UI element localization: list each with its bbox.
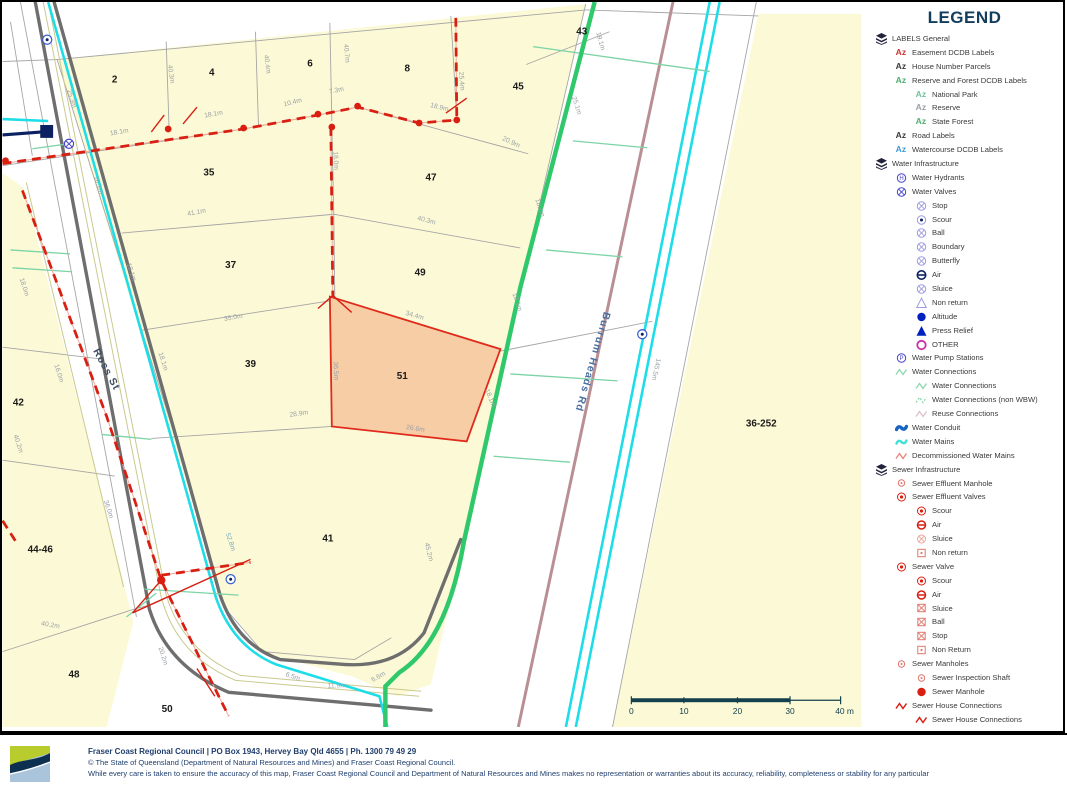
legend-item: Sewer House Connections [866,699,1063,713]
legend-item: Reuse Connections [866,407,1063,421]
water-valve-icon [64,139,73,148]
scale-end-label: 40 m [835,706,854,716]
legend-item: AzHouse Number Parcels [866,60,1063,74]
dimension-label: 36.5m [331,361,339,380]
legend-panel: LEGEND LABELS GeneralAzEasement DCDB Lab… [866,0,1065,733]
triangle-filled-blue-icon [914,325,928,337]
legend-item: Decommissioned Water Mains [866,449,1063,463]
legend-item-label: Scour [932,504,952,518]
legend-item: AzNational Park [866,88,1063,102]
scale-tick-label: 20 [733,706,743,716]
legend-item-label: Butterfly [932,254,960,268]
legend-item-label: Sewer Manhole [932,685,985,699]
legend-item: Boundary [866,240,1063,254]
dimension-label: 25.4m [457,72,465,92]
legend-item-label: Sewer Effluent Manhole [912,477,993,491]
legend-item-label: Non return [932,546,968,560]
zigzag-green-icon [914,380,928,392]
parcel-label: 47 [425,173,437,184]
legend-item-label: Water Infrastructure [892,157,959,171]
circle-dot-red-icon [914,575,928,587]
legend-item: PWater Pump Stations [866,351,1063,365]
parcel-label: 36-252 [746,418,777,429]
dimension-label: 18.0m [331,151,339,170]
legend-item: Sluice [866,532,1063,546]
parcel-label: 8 [404,63,410,74]
legend-item: Water Connections (non WBW) [866,393,1063,407]
az-dark-icon: Az [894,61,908,73]
legend-item: Stop [866,199,1063,213]
footer-line-1: Fraser Coast Regional Council | PO Box 1… [88,747,1058,756]
legend-item-label: Sewer Effluent Valves [912,490,986,504]
circle-x-lightblue-icon [914,200,928,212]
circle-x-blue-icon [894,186,908,198]
legend-item: Sluice [866,602,1063,616]
circle-dot-red-small-icon [894,477,908,489]
legend-item: Scour [866,574,1063,588]
legend-item: AzState Forest [866,115,1063,129]
legend-item: LABELS General [866,32,1063,46]
water-hydrant-icon [638,330,647,339]
footer-text: Fraser Coast Regional Council | PO Box 1… [88,747,1058,778]
parcel-label: 41 [322,534,334,545]
legend-item-label: Water Connections [932,379,996,393]
circle-dot-red-small-icon [894,658,908,670]
legend-item: Altitude [866,310,1063,324]
circle-hbar-blue-icon [914,269,928,281]
legend-title: LEGEND [866,8,1063,28]
legend-item: Sewer Inspection Shaft [866,671,1063,685]
svg-text:H: H [899,176,903,182]
circle-magenta-icon [914,339,928,351]
legend-item-label: Reserve [932,101,960,115]
square-x-red-icon [914,616,928,628]
legend-item-label: Reuse Connections [932,407,998,421]
legend-item: Water Mains [866,435,1063,449]
legend-item: Air [866,268,1063,282]
parcel-label: 42 [13,398,25,409]
legend-item: Sewer Manholes [866,657,1063,671]
zigzag-salmon-icon [894,450,908,462]
gis-print-page: 24684543354737493951414244-46485036-252R… [0,0,1067,800]
zigzag-red-icon [894,700,908,712]
circle-x-lightblue-icon [914,227,928,239]
parcel-label: 44-46 [28,544,54,555]
parcel-label: 4 [209,67,215,78]
legend-item-label: Reserve and Forest DCDB Labels [912,74,1027,88]
dimension-label: 11.9m [328,682,347,689]
legend-item: Sewer Effluent Valves [866,490,1063,504]
scale-tick-label: 0 [629,706,634,716]
legend-items: LABELS GeneralAzEasement DCDB LabelsAzHo… [866,32,1063,727]
legend-item-label: Decommissioned Water Mains [912,449,1015,463]
legend-item: Scour [866,213,1063,227]
legend-item: Water Connections [866,365,1063,379]
legend-item: Sewer Effluent Manhole [866,477,1063,491]
legend-item: AzWatercourse DCDB Labels [866,143,1063,157]
legend-item: AzReserve [866,101,1063,115]
legend-item-label: LABELS General [892,32,950,46]
parcel-label: 45 [513,81,525,92]
legend-item-label: Ball [932,615,945,629]
legend-item: Ball [866,615,1063,629]
az-dark-icon: Az [894,130,908,142]
legend-item-label: State Forest [932,115,973,129]
circle-p-blue-icon: P [894,352,908,364]
wave-navy-icon [894,422,908,434]
legend-item-label: Scour [932,213,952,227]
triangle-outline-icon [914,297,928,309]
circle-x-lightred-icon [914,533,928,545]
legend-item-label: Non Return [932,643,971,657]
legend-item: Water Valves [866,185,1063,199]
dimension-label: 19.1m [594,31,606,51]
legend-item: Sewer House Connections [866,713,1063,727]
map-canvas[interactable]: 24684543354737493951414244-46485036-252R… [2,2,862,727]
zigzag-green-dashed-icon [914,394,928,406]
dimension-label: 6.5m [284,671,301,683]
az-teal-icon: Az [914,89,928,101]
parcel-label: 37 [225,260,237,271]
square-x-red-icon [914,630,928,642]
dimension-label: 145.5m [650,358,662,382]
scale-tick-label: 30 [785,706,795,716]
az-red-icon: Az [894,47,908,59]
legend-item-label: Stop [932,629,948,643]
parcel-label: 48 [68,669,80,680]
parcel-label: 43 [576,27,588,38]
layers-icon [874,158,888,170]
map-frame: 24684543354737493951414244-46485036-252R… [0,0,868,733]
az-green-icon: Az [894,75,908,87]
legend-item-label: Watercourse DCDB Labels [912,143,1003,157]
legend-item-label: Boundary [932,240,965,254]
legend-item-label: Air [932,588,941,602]
water-hydrant-icon [226,575,235,584]
legend-item: Non return [866,546,1063,560]
legend-item: HWater Hydrants [866,171,1063,185]
legend-item-label: Air [932,268,941,282]
legend-item: Non return [866,296,1063,310]
legend-item-label: Press Relief [932,324,973,338]
legend-item: Water Connections [866,379,1063,393]
legend-item: Butterfly [866,254,1063,268]
square-x-red-icon [914,602,928,614]
circle-x-lightblue-icon [914,283,928,295]
square-dot-red-icon [914,547,928,559]
legend-item: Water Infrastructure [866,157,1063,171]
svg-text:P: P [899,357,903,363]
layers-icon [874,33,888,45]
legend-item-label: Sewer Manholes [912,657,969,671]
legend-item-label: House Number Parcels [912,60,991,74]
parcel-label: 35 [203,168,215,179]
parcel-label: 6 [307,58,313,69]
legend-item: Sewer Infrastructure [866,463,1063,477]
legend-item: Water Conduit [866,421,1063,435]
parcel-label: 51 [397,371,409,382]
road-label: Burrum Heads Rd [573,311,612,413]
legend-item-label: Water Connections (non WBW) [932,393,1038,407]
legend-item-label: Air [932,518,941,532]
layers-icon [874,464,888,476]
zigzag-green-icon [894,366,908,378]
dimension-label: 20.2m [156,646,169,666]
circle-dot-red-icon [894,561,908,573]
water-hydrant-icon [43,35,52,44]
scale-tick-label: 10 [679,706,689,716]
parcel-label: 50 [162,704,174,715]
az-gray-icon: Az [914,102,928,114]
footer: Fraser Coast Regional Council | PO Box 1… [0,733,1067,800]
wave-cyan-icon [894,436,908,448]
footer-line-3: While every care is taken to ensure the … [88,769,1058,778]
legend-item-label: Altitude [932,310,957,324]
circle-hbar-red-icon [914,519,928,531]
legend-item: Press Relief [866,324,1063,338]
parcel-label: 39 [245,359,257,370]
legend-item-label: Sluice [932,532,953,546]
legend-item-label: Sewer Infrastructure [892,463,960,477]
parcel-label: 2 [112,74,118,85]
council-logo-icon [10,746,50,782]
az-green-icon: Az [914,116,928,128]
legend-item: Sluice [866,282,1063,296]
legend-item-label: Non return [932,296,968,310]
dimension-label: 25.1m [570,96,583,116]
legend-item: OTHER [866,338,1063,352]
zigzag-red-icon [914,714,928,726]
legend-item: Ball [866,226,1063,240]
circle-dot-red-icon [914,505,928,517]
legend-item: Sewer Manhole [866,685,1063,699]
legend-item: Non Return [866,643,1063,657]
legend-item: Air [866,518,1063,532]
legend-item-label: Water Hydrants [912,171,964,185]
circle-filled-red-icon [914,686,928,698]
legend-item-label: Easement DCDB Labels [912,46,994,60]
legend-item-label: Water Pump Stations [912,351,983,365]
legend-item-label: Sewer Inspection Shaft [932,671,1010,685]
circle-dot-red-icon [894,491,908,503]
legend-item-label: OTHER [932,338,959,352]
legend-item-label: Water Connections [912,365,976,379]
legend-item-label: Ball [932,226,945,240]
circle-filled-blue-icon [914,311,928,323]
legend-item: AzReserve and Forest DCDB Labels [866,74,1063,88]
legend-item: Stop [866,629,1063,643]
legend-item-label: Sewer Valve [912,560,954,574]
legend-item-label: Sewer House Connections [912,699,1002,713]
legend-item-label: Sluice [932,602,953,616]
legend-item-label: Road Labels [912,129,955,143]
circle-x-lightblue-icon [914,241,928,253]
legend-item: Sewer Valve [866,560,1063,574]
legend-item-label: Stop [932,199,948,213]
footer-line-2: © The State of Queensland (Department of… [88,758,1058,767]
legend-item: AzEasement DCDB Labels [866,46,1063,60]
legend-item-label: Water Conduit [912,421,960,435]
circle-dot-red-small-icon [914,672,928,684]
circle-dot-blue-icon [914,214,928,226]
legend-item-label: Water Mains [912,435,954,449]
circle-x-lightblue-icon [914,255,928,267]
circle-h-blue-icon: H [894,172,908,184]
zigzag-pink-icon [914,408,928,420]
legend-item: Air [866,588,1063,602]
circle-hbar-red-icon [914,589,928,601]
legend-item: Scour [866,504,1063,518]
parcel-label: 49 [415,268,427,279]
legend-item: AzRoad Labels [866,129,1063,143]
legend-item-label: Sluice [932,282,953,296]
square-dot-red-icon [914,644,928,656]
legend-item-label: Water Valves [912,185,956,199]
legend-item-label: Scour [932,574,952,588]
az-blue-icon: Az [894,144,908,156]
legend-item-label: Sewer House Connections [932,713,1022,727]
legend-item-label: National Park [932,88,978,102]
